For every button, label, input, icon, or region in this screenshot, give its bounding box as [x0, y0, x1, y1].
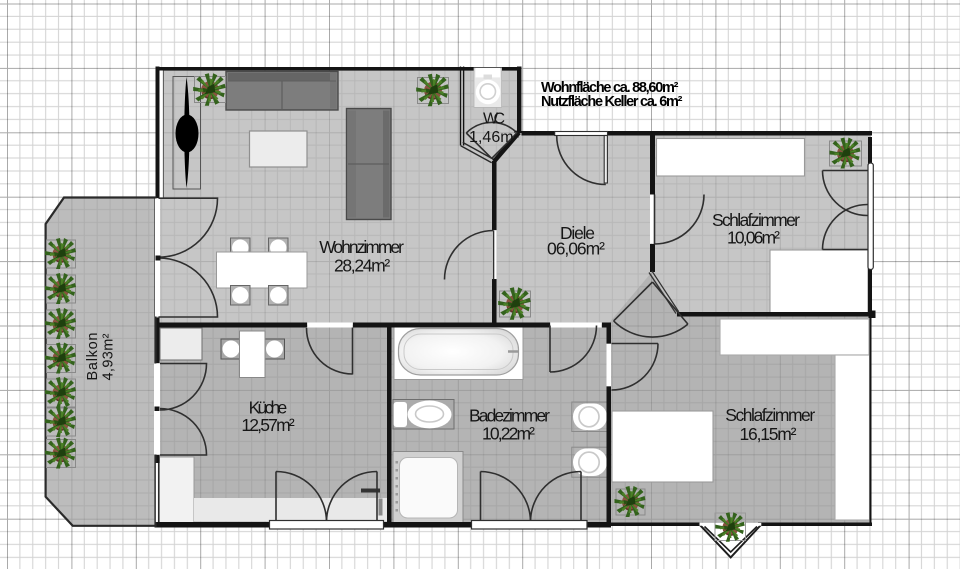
- svg-text:4,93m²: 4,93m²: [101, 333, 117, 380]
- svg-text:Balkon: Balkon: [85, 333, 101, 381]
- svg-text:Schlafzimmer: Schlafzimmer: [725, 405, 815, 425]
- svg-text:1,46m²: 1,46m²: [469, 129, 520, 146]
- svg-text:28,24m²: 28,24m²: [334, 256, 390, 276]
- svg-text:WC: WC: [483, 111, 505, 128]
- svg-text:12,57m²: 12,57m²: [241, 415, 294, 435]
- svg-text:06,06m²: 06,06m²: [547, 239, 605, 259]
- svg-text:16,15m²: 16,15m²: [740, 424, 797, 444]
- svg-text:10,22m²: 10,22m²: [482, 424, 535, 444]
- svg-text:10,06m²: 10,06m²: [727, 228, 780, 248]
- svg-text:Badezimmer: Badezimmer: [469, 406, 550, 426]
- svg-text:Nutzfläche Keller ca. 6m²: Nutzfläche Keller ca. 6m²: [541, 94, 683, 110]
- svg-text:Wohnzimmer: Wohnzimmer: [319, 237, 404, 257]
